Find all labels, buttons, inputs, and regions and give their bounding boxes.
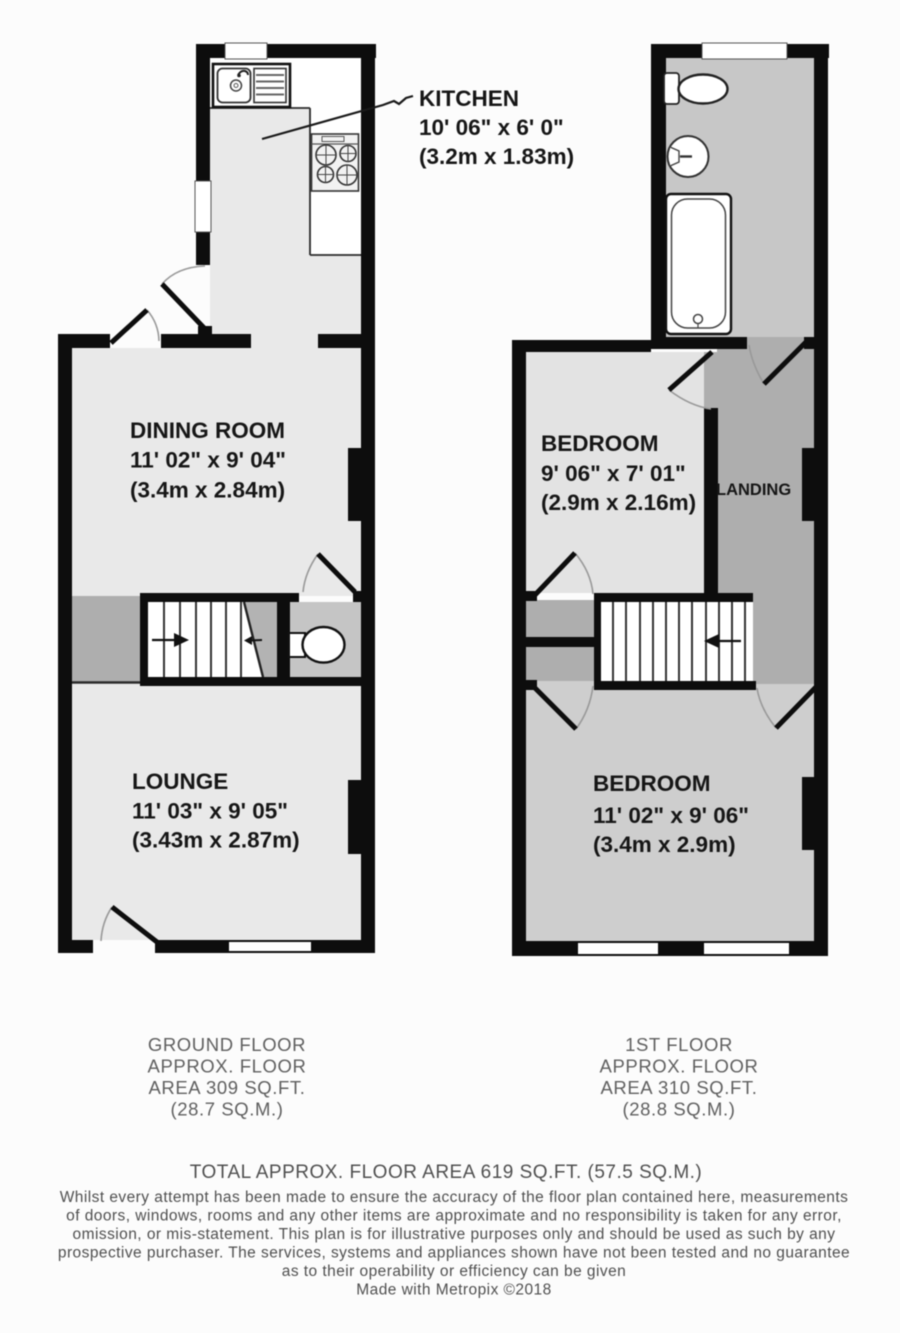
svg-text:LOUNGE: LOUNGE [132,769,228,794]
svg-text:11' 03" x 9' 05": 11' 03" x 9' 05" [132,799,288,824]
svg-text:11' 02" x 9' 04": 11' 02" x 9' 04" [130,448,286,473]
svg-text:APPROX. FLOOR: APPROX. FLOOR [600,1056,759,1077]
svg-text:as to their operability or eff: as to their operability or efficiency ca… [282,1263,626,1280]
svg-text:BEDROOM: BEDROOM [593,771,711,796]
svg-text:11' 02" x 9' 06": 11' 02" x 9' 06" [593,803,749,828]
svg-text:omission, or mis-statement. Th: omission, or mis-statement. This plan is… [73,1226,836,1243]
svg-text:(3.2m x 1.83m): (3.2m x 1.83m) [419,144,574,169]
svg-text:10' 06" x 6' 0": 10' 06" x 6' 0" [419,115,564,140]
svg-text:9' 06" x 7' 01": 9' 06" x 7' 01" [541,461,686,486]
svg-text:AREA 310 SQ.FT.: AREA 310 SQ.FT. [600,1077,757,1098]
svg-text:Made with Metropix ©2018: Made with Metropix ©2018 [356,1282,551,1299]
svg-text:(3.4m x 2.84m): (3.4m x 2.84m) [130,478,285,503]
svg-text:AREA 309 SQ.FT.: AREA 309 SQ.FT. [148,1077,305,1098]
svg-text:GROUND FLOOR: GROUND FLOOR [148,1034,306,1055]
svg-text:TOTAL APPROX. FLOOR AREA 619 S: TOTAL APPROX. FLOOR AREA 619 SQ.FT. (57.… [190,1162,703,1183]
svg-text:(28.7 SQ.M.): (28.7 SQ.M.) [170,1099,283,1120]
svg-text:LANDING: LANDING [716,481,791,499]
svg-text:1ST FLOOR: 1ST FLOOR [625,1034,733,1055]
svg-text:of doors, windows, rooms and a: of doors, windows, rooms and any other i… [66,1208,842,1225]
svg-text:DINING ROOM: DINING ROOM [130,418,285,443]
svg-text:(3.4m x 2.9m): (3.4m x 2.9m) [593,832,736,857]
svg-text:BEDROOM: BEDROOM [541,431,659,456]
svg-text:APPROX. FLOOR: APPROX. FLOOR [148,1056,307,1077]
svg-text:(3.43m x 2.87m): (3.43m x 2.87m) [132,828,300,853]
svg-text:KITCHEN: KITCHEN [419,86,519,111]
svg-text:(28.8 SQ.M.): (28.8 SQ.M.) [622,1099,735,1120]
svg-text:prospective purchaser. The ser: prospective purchaser. The services, sys… [58,1245,850,1262]
svg-text:Whilst every attempt has been: Whilst every attempt has been made to en… [60,1189,849,1206]
svg-text:(2.9m x 2.16m): (2.9m x 2.16m) [541,490,696,515]
